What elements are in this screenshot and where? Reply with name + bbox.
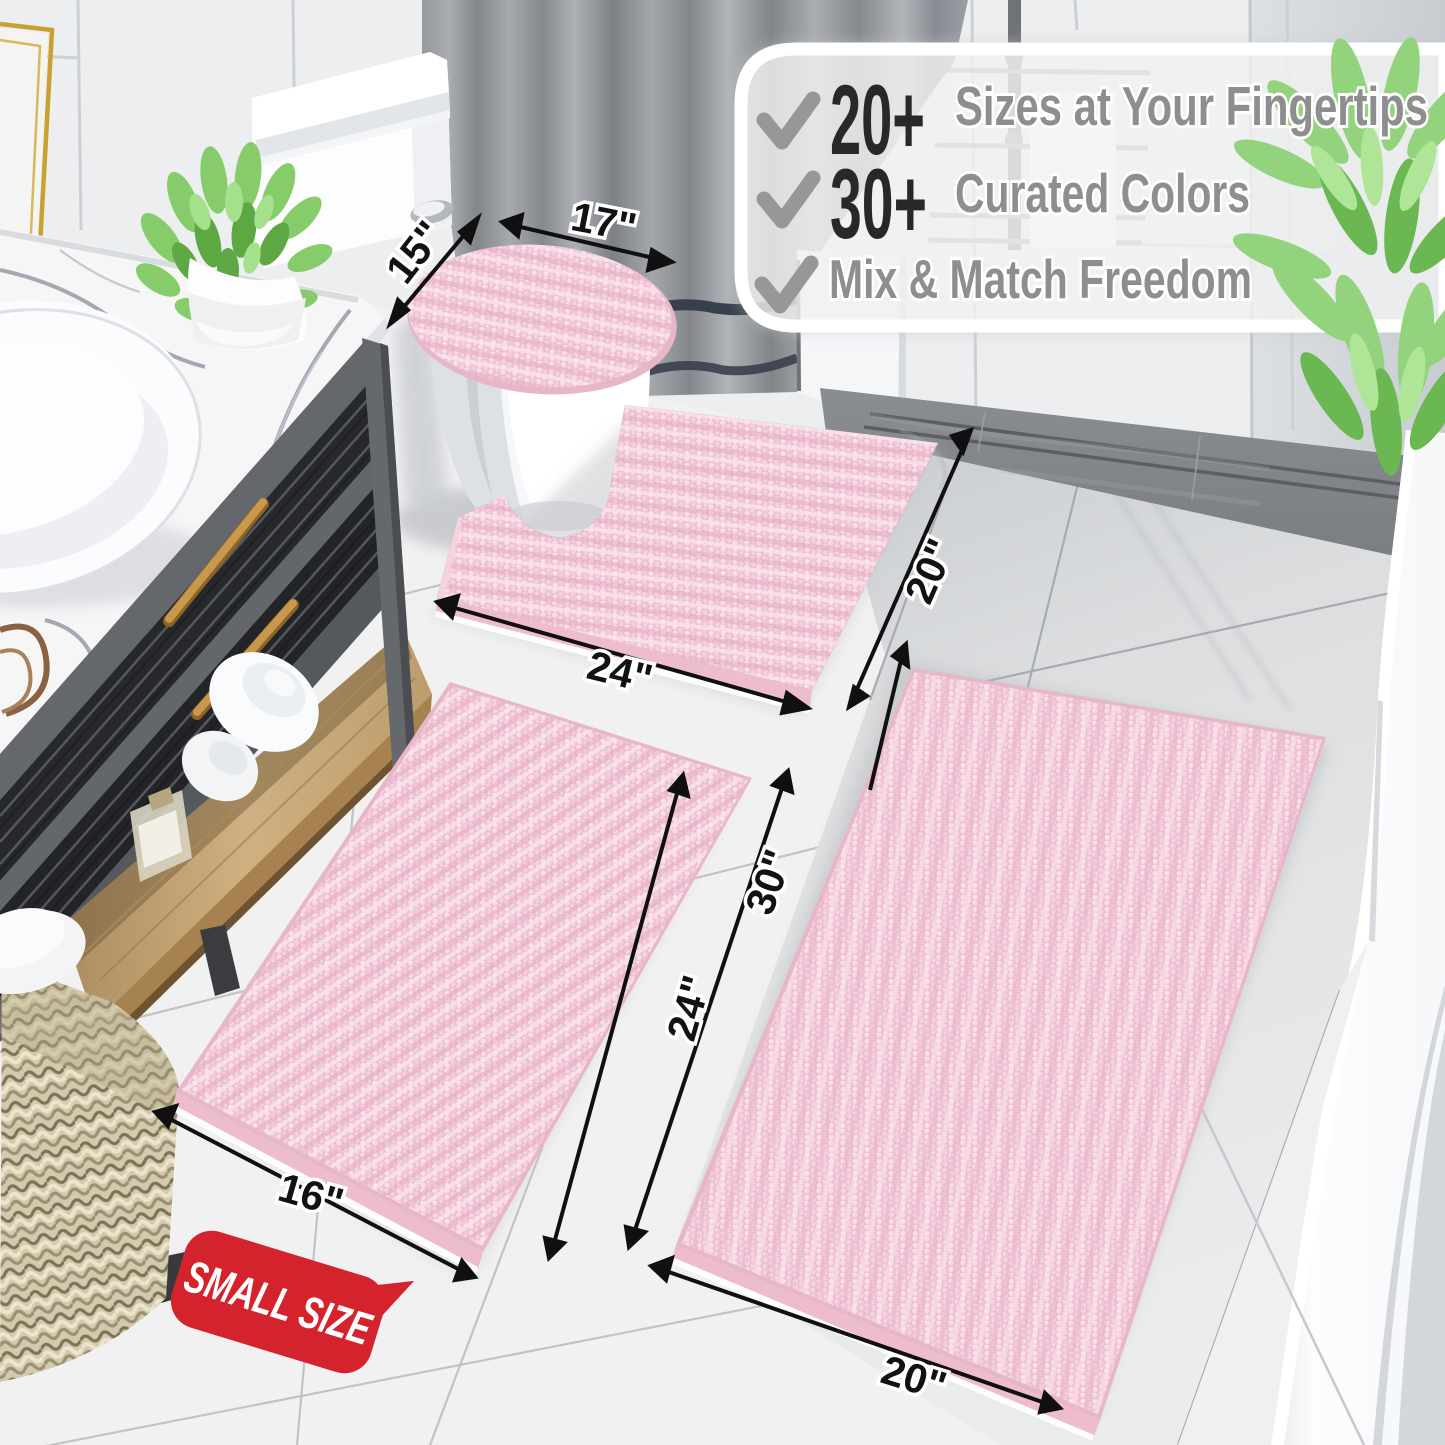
svg-text:Mix & Match Freedom: Mix & Match Freedom <box>829 248 1252 310</box>
svg-text:Sizes at Your Fingertips: Sizes at Your Fingertips <box>955 75 1428 137</box>
svg-text:30+: 30+ <box>830 148 927 259</box>
svg-text:Curated Colors: Curated Colors <box>955 162 1250 224</box>
